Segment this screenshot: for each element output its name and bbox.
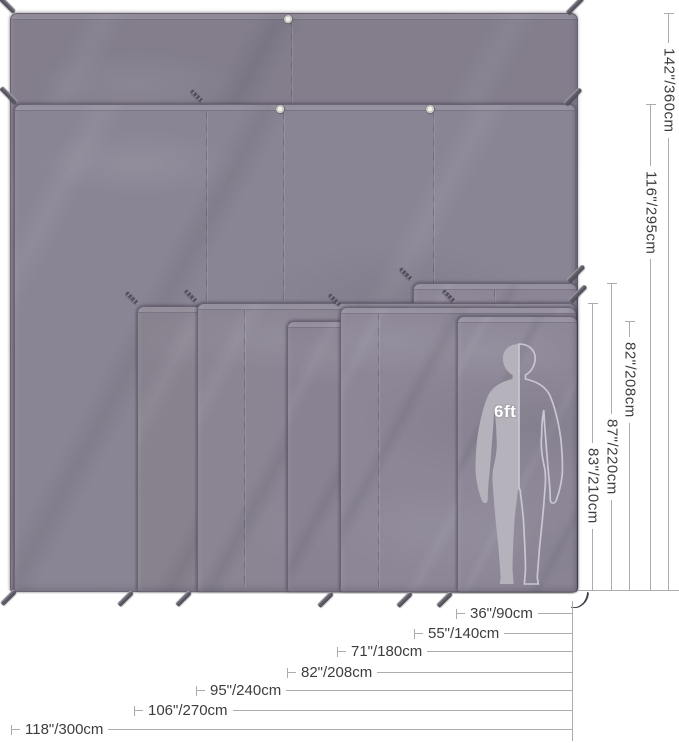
dim-height-82: 82"/208cm [629,321,630,590]
corner-stake [396,591,413,608]
dim-label: 82"/208cm [296,663,377,682]
corner-stake [0,0,17,14]
dim-label: 87"/220cm [604,414,621,500]
dim-label: 82"/208cm [622,337,639,423]
dim-connector-line [572,601,573,741]
corner-stake [0,589,17,606]
dim-label: 106"/270cm [143,701,233,720]
person-height-label: 6ft [494,402,516,422]
dim-label: 142"/360cm [661,43,678,138]
corner-stake [436,591,453,608]
dim-label: 71"/180cm [346,642,427,661]
grommet [276,105,285,114]
corner-stake [565,0,584,15]
dim-label: 95"/240cm [205,681,286,700]
fabric-seam [378,314,379,588]
dim-width-95: 95"/240cm [197,690,572,691]
dim-height-83: 83"/210cm [592,303,593,590]
corner-stake [317,591,334,608]
corner-stake [175,590,192,607]
corner-stake [117,590,134,607]
corner-rope [571,590,589,610]
tarp-size-comparison-diagram: 6ft 36"/90cm 55"/140cm 71"/180cm 82"/208… [0,0,679,743]
dim-width-82: 82"/208cm [288,672,572,673]
dim-width-118: 118"/300cm [12,729,572,730]
fabric-seam [244,310,245,588]
grommet [426,105,435,114]
dim-height-116: 116"/295cm [650,104,651,590]
dim-baseline [578,590,679,591]
dim-width-106: 106"/270cm [135,710,572,711]
grommet [284,15,293,24]
dim-height-87: 87"/220cm [611,283,612,590]
dim-height-142: 142"/360cm [668,13,669,590]
dim-label: 55"/140cm [423,624,504,643]
dim-label: 36"/90cm [465,604,538,623]
dim-label: 83"/210cm [585,443,602,529]
dim-width-36: 36"/90cm [457,613,572,614]
dim-label: 118"/300cm [20,720,108,739]
dim-label: 116"/295cm [643,166,660,259]
dim-width-71: 71"/180cm [338,651,572,652]
human-silhouette [463,338,575,588]
dim-width-55: 55"/140cm [415,633,572,634]
